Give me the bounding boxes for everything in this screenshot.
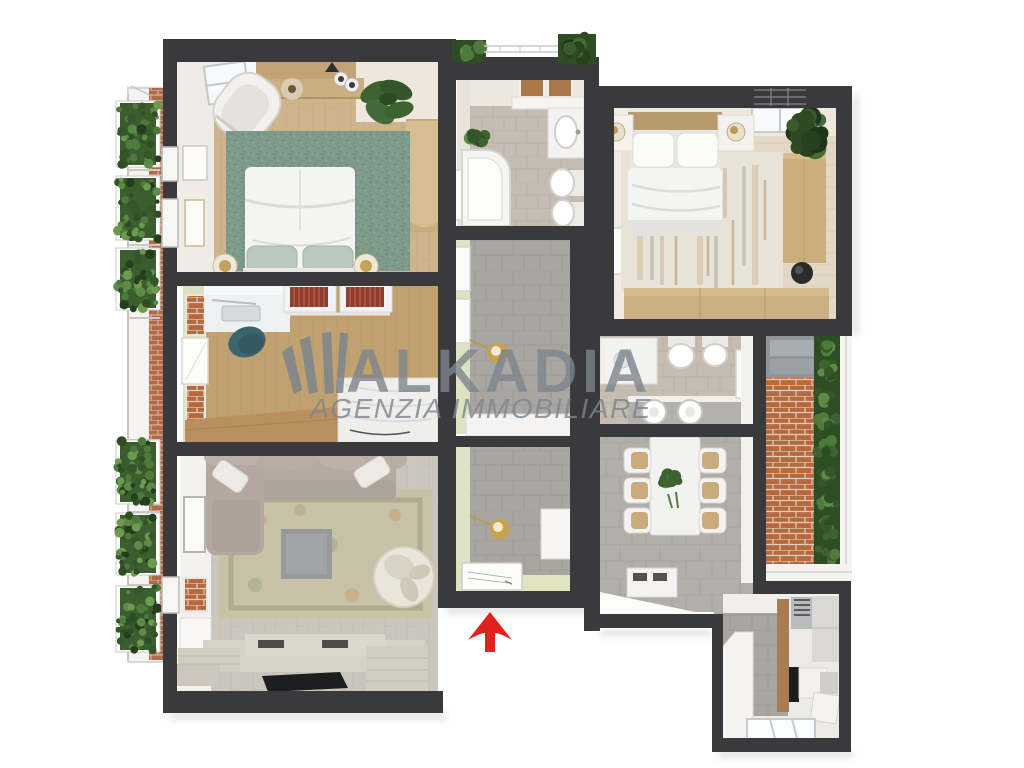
svg-text:AGENZIA IMMOBILIARE: AGENZIA IMMOBILIARE	[308, 393, 652, 424]
